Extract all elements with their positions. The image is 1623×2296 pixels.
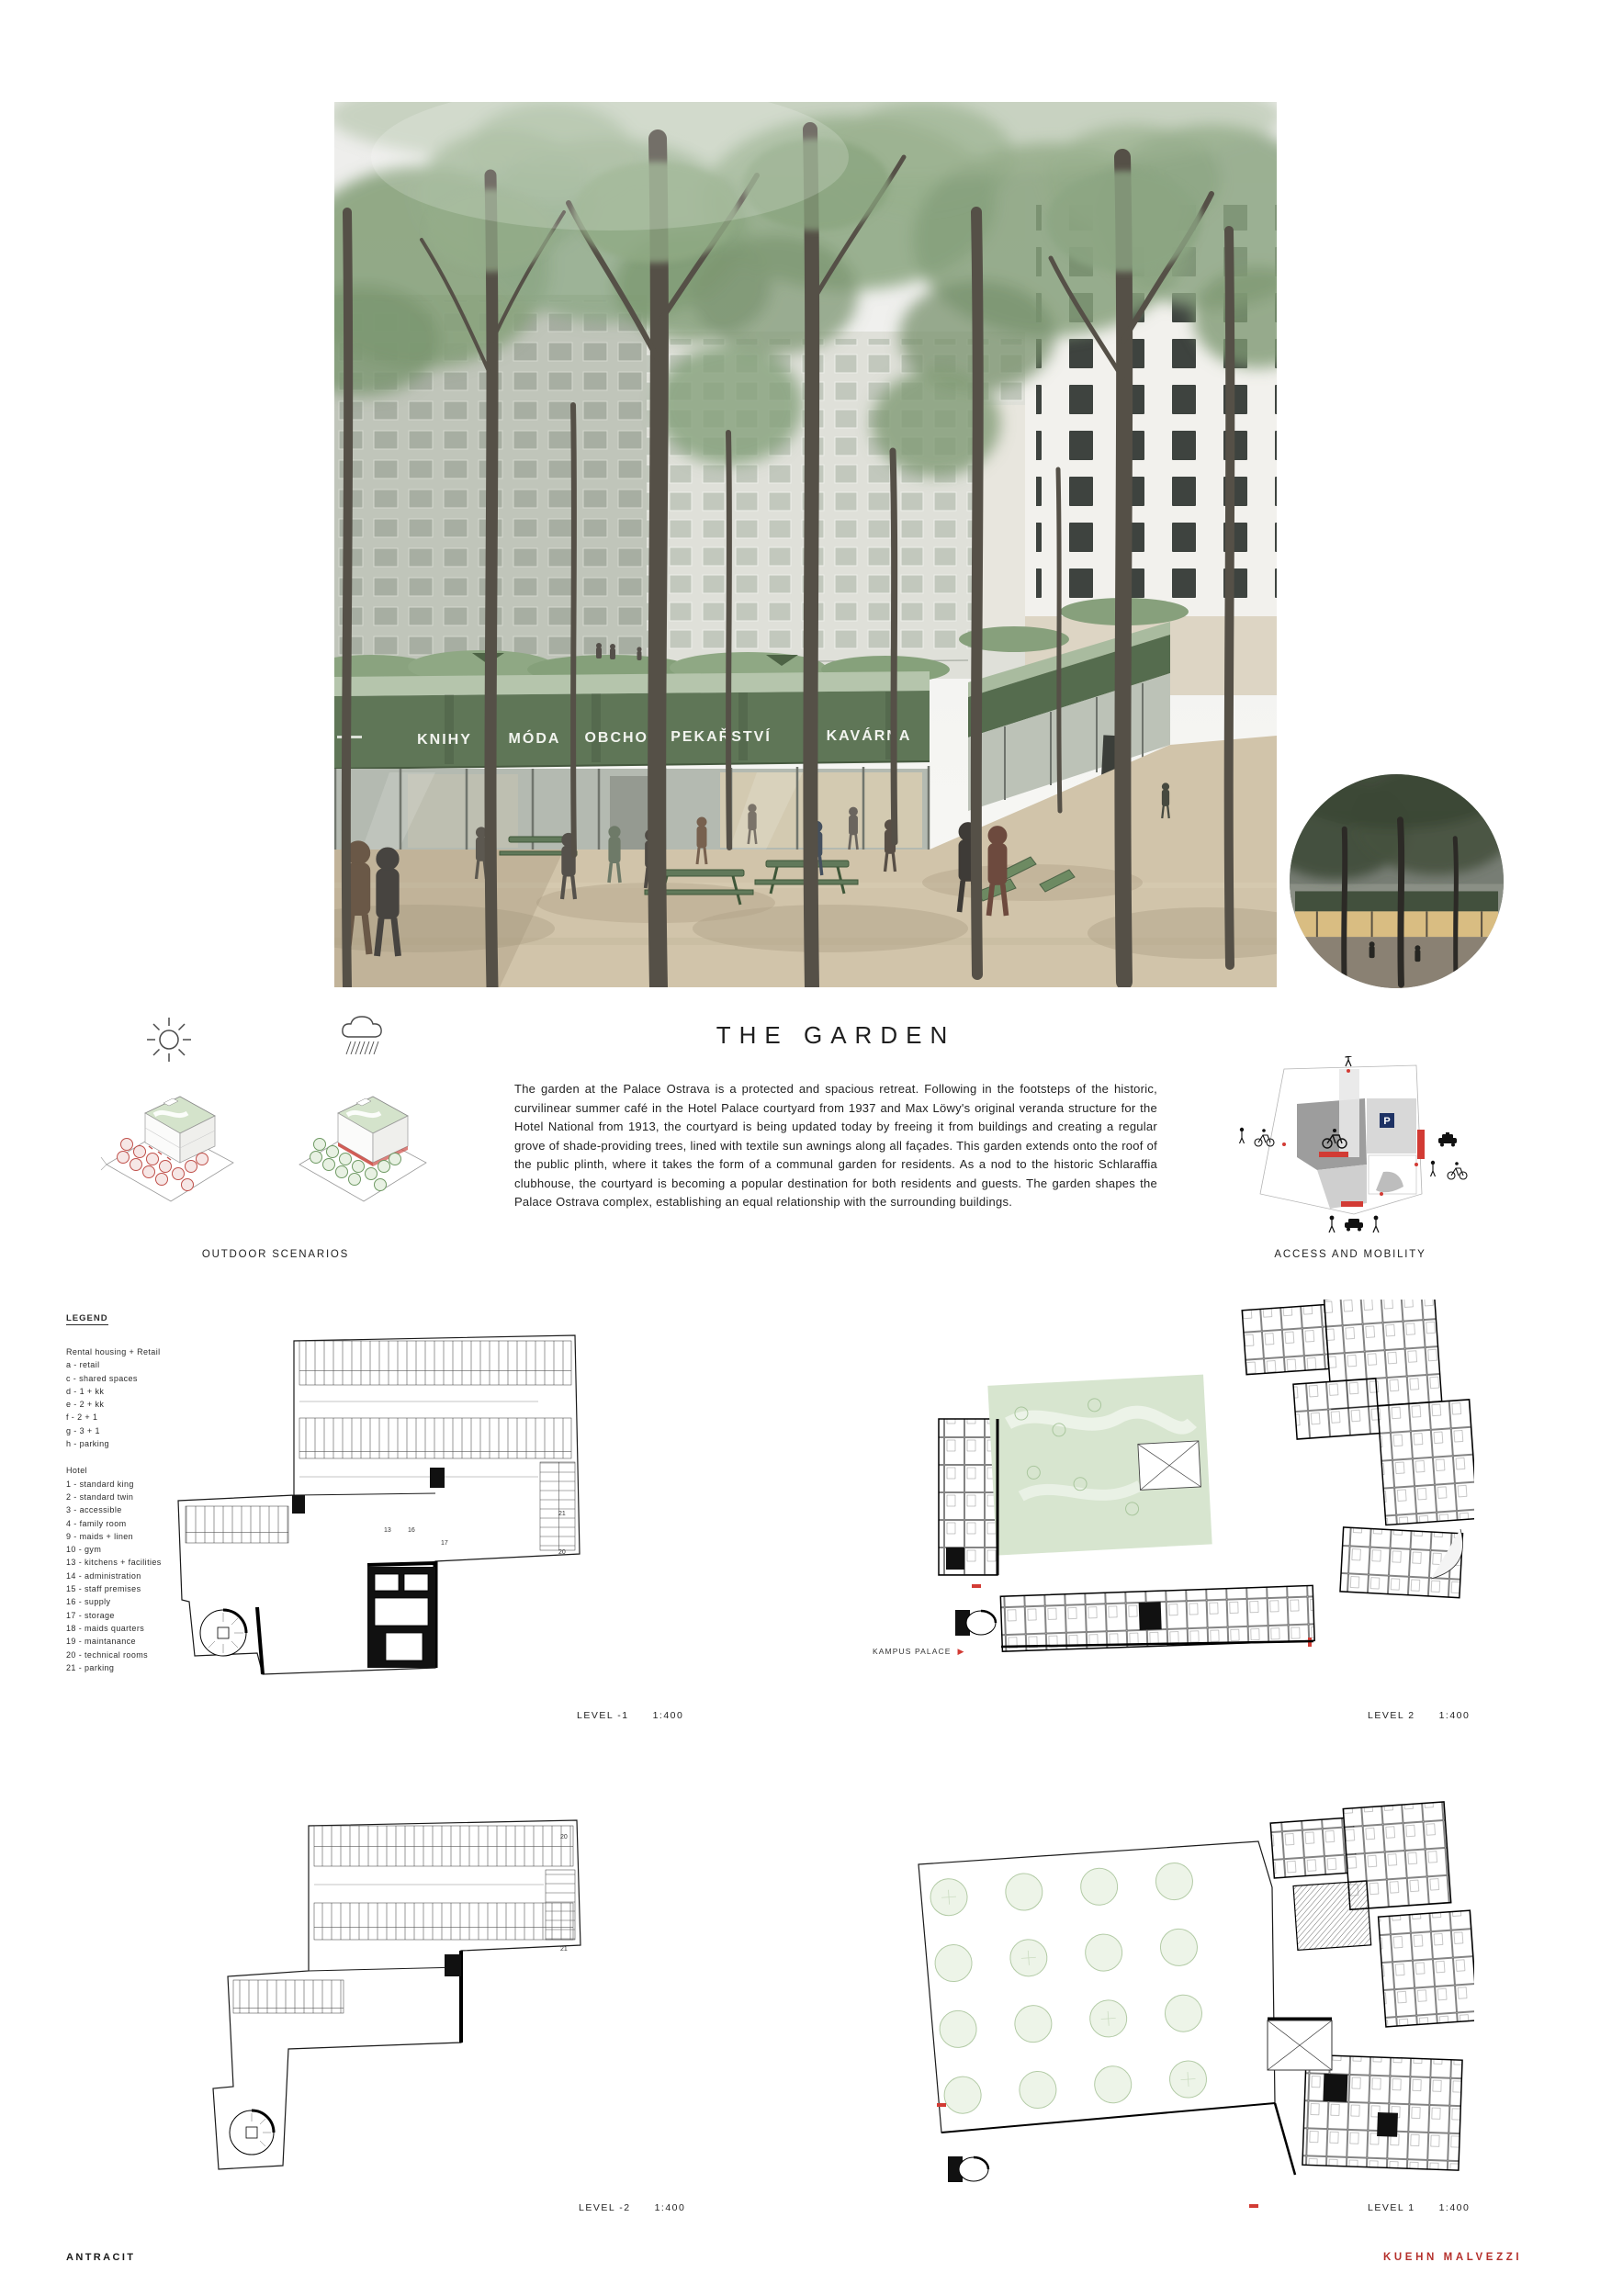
kampus-arrow-icon: ▶ (957, 1647, 964, 1656)
room-number: 21 (560, 1946, 568, 1953)
skylight-plan (1268, 2019, 1332, 2070)
pedestrian-icon-bottom-right (1373, 1216, 1379, 1232)
awning-sign-pekarstvi: PEKAŘSTVÍ (671, 727, 772, 745)
plan-label-level-minus-2: LEVEL -21:400 (579, 2202, 685, 2213)
room-number: 16 (408, 1527, 415, 1534)
oval-stair (948, 2156, 988, 2182)
room-number: 20 (558, 1549, 566, 1556)
plan-label-level-1: LEVEL 11:400 (1368, 2202, 1470, 2213)
ramp-stair (200, 1610, 246, 1656)
kampus-palace-label: KAMPUS PALACE▶ (873, 1647, 965, 1657)
sun-icon (143, 1014, 195, 1065)
axon-rain-scenario (296, 1073, 434, 1231)
taxi-icon-right (1438, 1132, 1457, 1147)
page-title: THE GARDEN (514, 1021, 1157, 1050)
room-number: 17 (441, 1540, 448, 1547)
oval-stair (955, 1610, 996, 1636)
floor-plan-level-minus-2: 21 20 (180, 1806, 683, 2196)
outdoor-scenarios-label: OUTDOOR SCENARIOS (119, 1249, 432, 1260)
awning-sign-moda: MÓDA (509, 729, 561, 747)
access-mobility-diagram: P (1229, 1056, 1477, 1244)
storefront (334, 766, 930, 850)
rain-cloud-icon (336, 1012, 388, 1062)
room-number: 13 (384, 1527, 391, 1534)
evening-inset-image (1290, 774, 1504, 988)
room-number: 21 (558, 1511, 566, 1517)
access-mobility-label: ACCESS AND MOBILITY (1222, 1249, 1479, 1260)
courtyard-rendering-image: KNIHY MÓDA OBCHOD PEKAŘSTVÍ KAVÁRNA (334, 102, 1277, 987)
pedestrian-cyclist-icon-right (1431, 1161, 1468, 1179)
awning-sign-knihy: KNIHY (417, 732, 472, 748)
car-icon-bottom (1345, 1219, 1363, 1232)
pedestrian-icon-top (1346, 1056, 1352, 1066)
pedestrian-cyclist-icon-left (1240, 1128, 1275, 1146)
roof-garden-plan (987, 1375, 1212, 1556)
footer-architect-name: KUEHN MALVEZZI (1383, 2252, 1522, 2263)
svg-text:P: P (1383, 1116, 1390, 1127)
footer-project-name: ANTRACIT (66, 2252, 135, 2263)
ramp-stair (230, 2110, 274, 2155)
courtyard-rendering: KNIHY MÓDA OBCHOD PEKAŘSTVÍ KAVÁRNA (334, 102, 1277, 987)
pedestrian-icon-bottom-left (1329, 1216, 1335, 1232)
floor-plan-level-minus-1: 13 16 17 21 20 (154, 1330, 682, 1702)
plan-label-level-2: LEVEL 21:400 (1368, 1710, 1470, 1721)
plan-label-level-minus-1: LEVEL -11:400 (577, 1710, 683, 1721)
project-description: The garden at the Palace Ostrava is a pr… (514, 1080, 1157, 1212)
legend-heading: LEGEND (66, 1313, 108, 1325)
awning-band: KNIHY MÓDA OBCHOD PEKAŘSTVÍ KAVÁRNA (334, 671, 930, 769)
floor-plan-level-2 (863, 1300, 1474, 1699)
presentation-board: KNIHY MÓDA OBCHOD PEKAŘSTVÍ KAVÁRNA (0, 0, 1623, 2296)
axon-sunny-scenario (99, 1073, 246, 1231)
awning-sign-kavarna: KAVÁRNA (827, 726, 912, 744)
floor-plan-level-1 (863, 1800, 1474, 2227)
room-number: 20 (560, 1834, 568, 1840)
parking-sign: P (1380, 1113, 1394, 1128)
